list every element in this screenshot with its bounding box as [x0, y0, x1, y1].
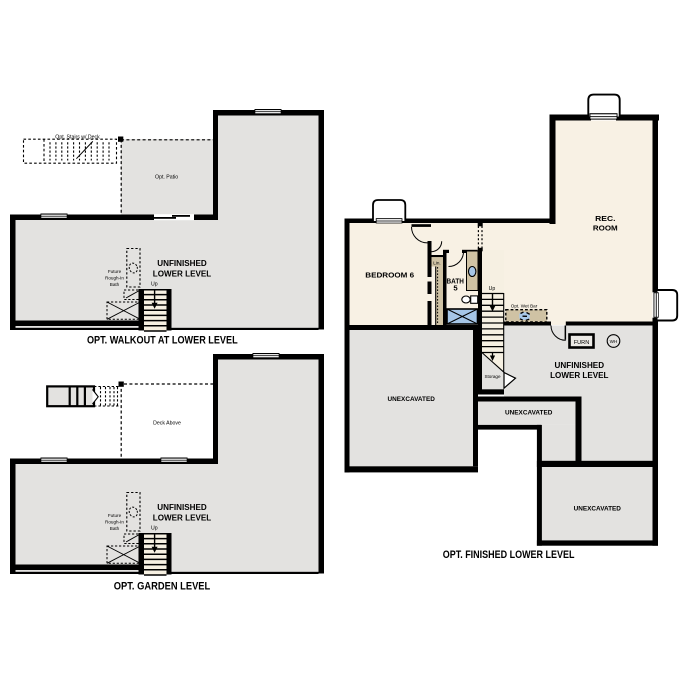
- svg-text:Up: Up: [151, 282, 158, 288]
- svg-text:BEDROOM 6: BEDROOM 6: [365, 271, 414, 280]
- svg-text:Future: Future: [108, 513, 122, 518]
- svg-text:Rough-In: Rough-In: [105, 276, 124, 281]
- svg-text:UNFINISHED: UNFINISHED: [157, 502, 207, 512]
- svg-text:Bath: Bath: [110, 526, 120, 531]
- svg-text:FURN: FURN: [574, 340, 590, 346]
- svg-text:Lin.: Lin.: [433, 260, 440, 265]
- svg-text:Storage: Storage: [484, 374, 501, 379]
- svg-text:Up: Up: [489, 286, 496, 292]
- svg-text:UNEXCAVATED: UNEXCAVATED: [505, 409, 552, 416]
- svg-text:Opt. Wet Bar: Opt. Wet Bar: [511, 304, 538, 309]
- svg-text:REC.: REC.: [595, 214, 615, 223]
- svg-text:Bath: Bath: [110, 282, 120, 287]
- svg-text:Opt. Stairs w/ Deck: Opt. Stairs w/ Deck: [55, 135, 100, 141]
- svg-text:UNFINISHED: UNFINISHED: [555, 360, 605, 370]
- svg-text:Deck Above: Deck Above: [153, 421, 181, 427]
- svg-text:UNEXCAVATED: UNEXCAVATED: [574, 506, 621, 513]
- svg-text:UNEXCAVATED: UNEXCAVATED: [388, 396, 435, 403]
- svg-text:Rough-In: Rough-In: [105, 520, 124, 525]
- svg-text:WH: WH: [610, 339, 618, 344]
- svg-text:OPT. FINISHED LOWER LEVEL: OPT. FINISHED LOWER LEVEL: [443, 549, 575, 561]
- svg-text:LOWER LEVEL: LOWER LEVEL: [153, 268, 211, 278]
- svg-text:Future: Future: [108, 269, 122, 274]
- svg-text:Opt. Patio: Opt. Patio: [155, 175, 178, 181]
- svg-text:OPT. GARDEN LEVEL: OPT. GARDEN LEVEL: [114, 580, 211, 592]
- svg-text:ROOM: ROOM: [593, 224, 618, 233]
- svg-text:LOWER LEVEL: LOWER LEVEL: [550, 370, 608, 380]
- svg-text:OPT. WALKOUT AT LOWER LEVEL: OPT. WALKOUT AT LOWER LEVEL: [87, 334, 238, 346]
- svg-text:UNFINISHED: UNFINISHED: [157, 258, 207, 268]
- svg-text:Up: Up: [151, 526, 158, 532]
- svg-text:5: 5: [453, 284, 458, 293]
- svg-text:LOWER LEVEL: LOWER LEVEL: [153, 513, 211, 523]
